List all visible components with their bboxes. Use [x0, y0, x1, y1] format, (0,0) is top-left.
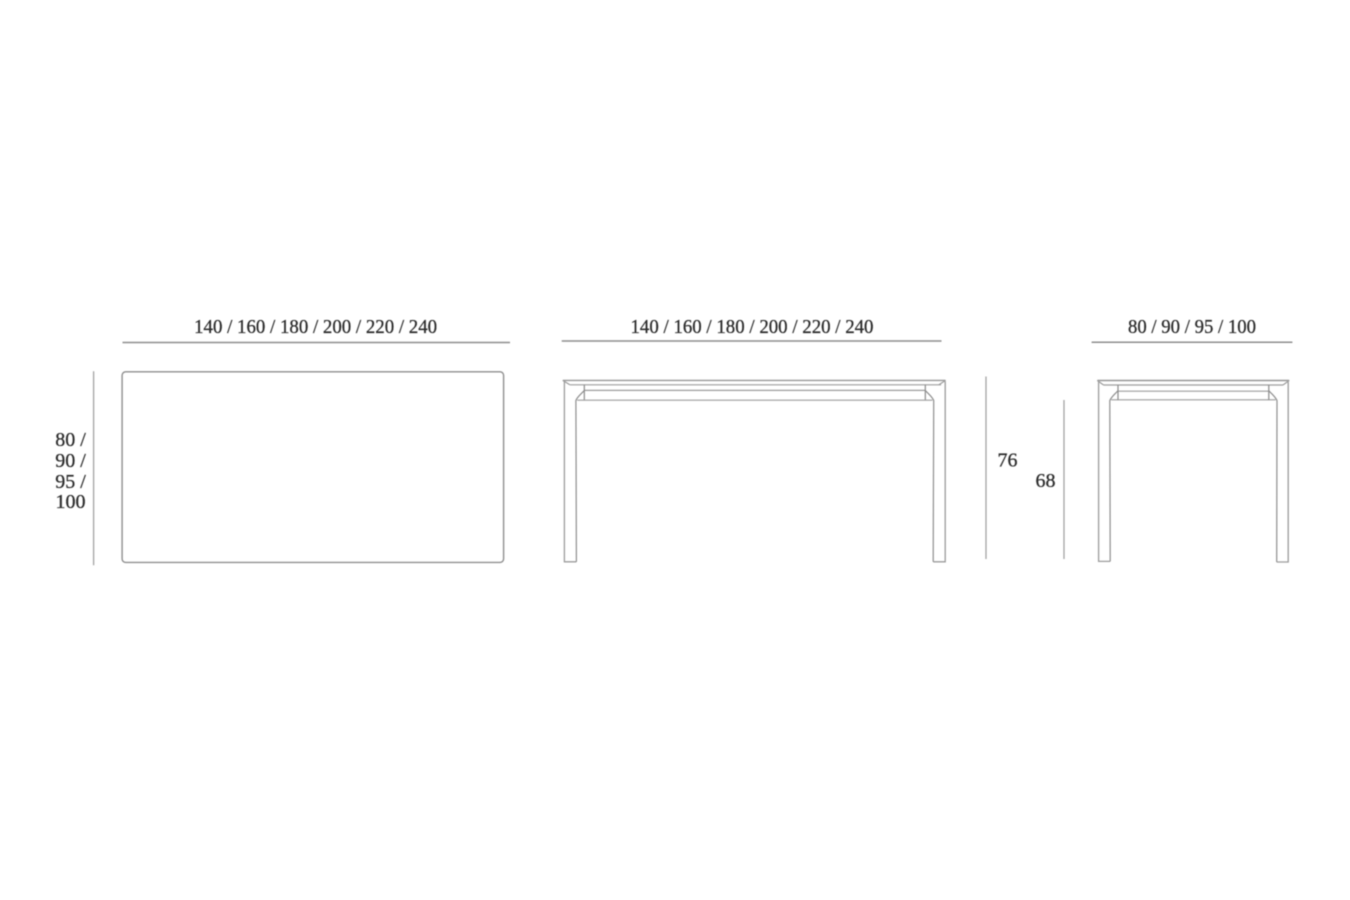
svg-text:140 / 160 / 180 / 200 / 220 /: 140 / 160 / 180 / 200 / 220 / 240	[631, 316, 874, 338]
svg-text:100: 100	[56, 491, 86, 513]
svg-text:140 / 160 / 180 / 200 / 220 /: 140 / 160 / 180 / 200 / 220 / 240	[194, 316, 437, 338]
svg-text:80 /: 80 /	[55, 429, 86, 451]
svg-text:80 / 90 / 95 / 100: 80 / 90 / 95 / 100	[1128, 316, 1256, 338]
svg-text:76: 76	[998, 450, 1018, 472]
svg-text:90 /: 90 /	[55, 450, 86, 472]
svg-text:95 /: 95 /	[55, 471, 86, 493]
svg-text:68: 68	[1036, 470, 1056, 492]
